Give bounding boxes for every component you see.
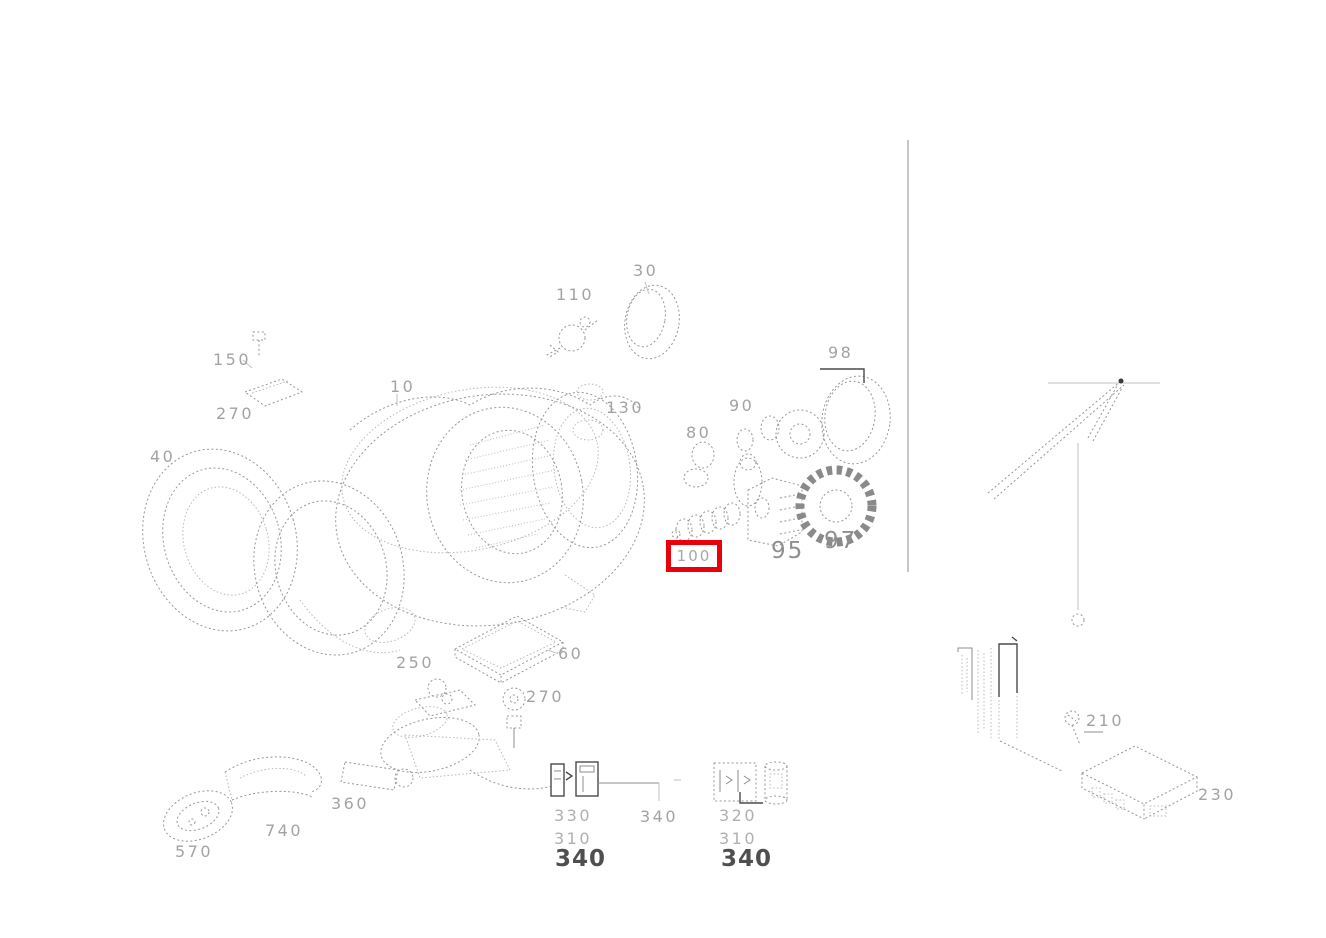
highlighted-part-box[interactable]: 100 — [666, 540, 722, 572]
part-label-30[interactable]: 30 — [633, 262, 658, 280]
part-label-210[interactable]: 210 — [1086, 712, 1124, 730]
connector-icons-drawing — [551, 762, 787, 804]
part-label-97[interactable]: 97 — [824, 528, 857, 554]
part-label-98[interactable]: 98 — [828, 344, 853, 362]
part-label-95[interactable]: 95 — [771, 538, 804, 564]
part-label-40[interactable]: 40 — [150, 448, 175, 466]
part-label-column-left-row3[interactable]: 340 — [555, 846, 606, 872]
part-label-110[interactable]: 110 — [556, 286, 594, 304]
control-module-box-drawing — [1082, 746, 1197, 819]
part-label-340-mid[interactable]: 340 — [640, 808, 678, 826]
part-label-column-left-row1[interactable]: 330 — [554, 804, 592, 827]
parts-diagram-page: 30 110 130 10 150 270 40 98 90 80 95 97 … — [0, 0, 1326, 938]
headlamp-lens-rings-drawing — [122, 431, 425, 673]
part-label-570[interactable]: 570 — [175, 843, 213, 861]
part-label-60[interactable]: 60 — [558, 645, 583, 663]
part-label-column-right-row3[interactable]: 340 — [721, 846, 772, 872]
screw-and-bracket-drawing — [243, 332, 302, 406]
diagram-line-art — [0, 0, 1326, 938]
wiring-connector-drawing — [958, 637, 1103, 771]
part-label-130[interactable]: 130 — [606, 399, 644, 417]
part-label-270a[interactable]: 270 — [216, 405, 254, 423]
part-label-230[interactable]: 230 — [1198, 786, 1236, 804]
part-label-90[interactable]: 90 — [729, 397, 754, 415]
part-label-100: 100 — [677, 547, 712, 565]
part-label-250[interactable]: 250 — [396, 654, 434, 672]
part-label-150[interactable]: 150 — [213, 351, 251, 369]
pointer-arrow-drawing — [988, 379, 1160, 627]
part-label-270b[interactable]: 270 — [526, 688, 564, 706]
part-label-10[interactable]: 10 — [390, 378, 415, 396]
part-label-360[interactable]: 360 — [331, 795, 369, 813]
part-label-80[interactable]: 80 — [686, 424, 711, 442]
part-label-column-right-row1[interactable]: 320 — [719, 804, 757, 827]
part-label-740[interactable]: 740 — [265, 822, 303, 840]
